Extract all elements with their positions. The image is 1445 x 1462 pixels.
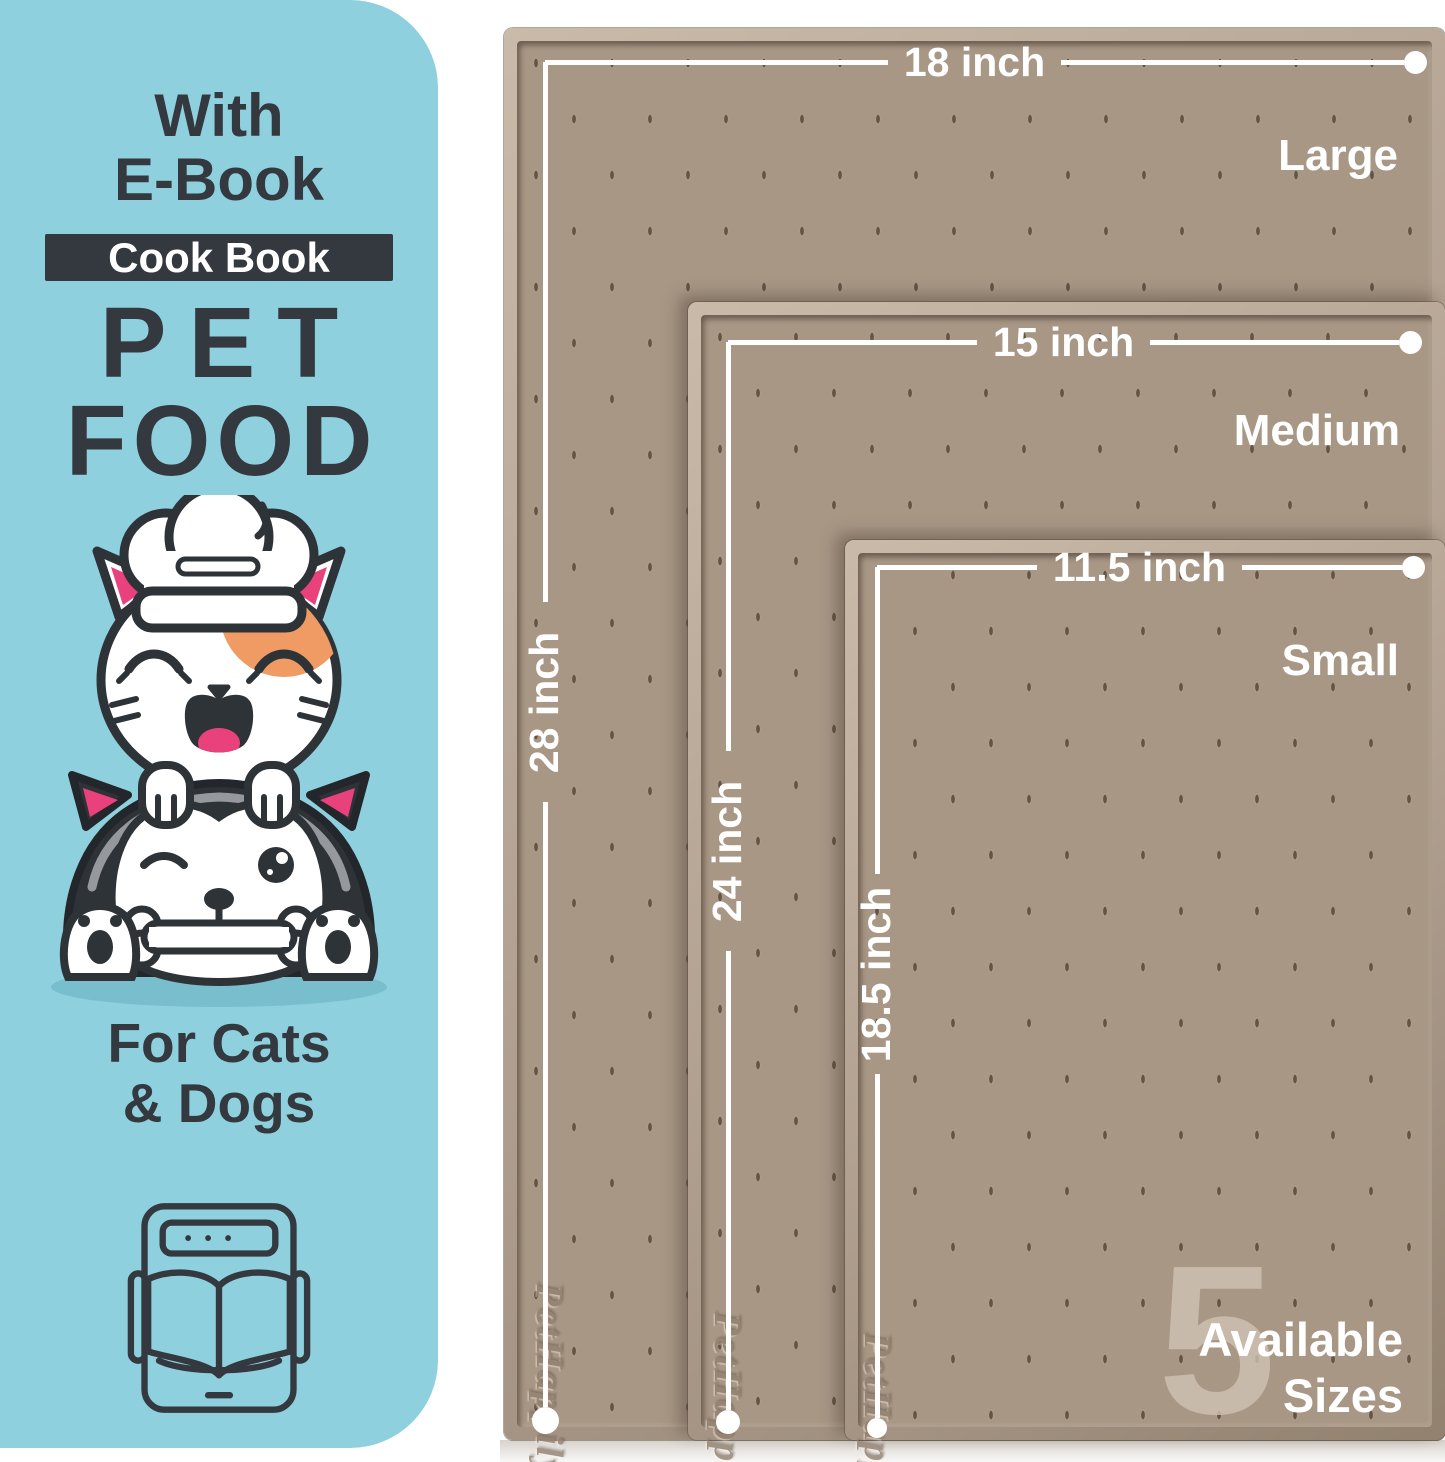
dimension-width-small-label: 11.5 inch (1037, 544, 1242, 591)
cookbook-badge: Cook Book (45, 234, 393, 281)
available-line2: Sizes (1198, 1368, 1403, 1424)
audience-text: For Cats & Dogs (107, 1013, 330, 1133)
chef-hat (124, 495, 314, 628)
dimension-line-segment (726, 342, 731, 751)
dimension-height-medium-labelbox: 24 inch (657, 751, 798, 951)
dimension-endpoint-dot (1402, 556, 1425, 579)
dimension-width-medium-label: 15 inch (977, 319, 1150, 366)
audience-line2: & Dogs (123, 1072, 316, 1134)
dimension-height-large: 28 inch (521, 62, 569, 1434)
dimension-height-large-labelbox: 28 inch (474, 602, 615, 802)
dimension-height-medium-label: 24 inch (705, 781, 752, 922)
dimension-line-segment (875, 567, 880, 874)
dimension-height-medium: 24 inch (704, 342, 752, 1434)
dimension-line-segment (543, 62, 548, 602)
dimension-endpoint-dot (1399, 331, 1422, 354)
size-label-small: Small (1282, 636, 1399, 686)
dimension-height-large-label: 28 inch (522, 631, 569, 772)
headline-line2: E-Book (114, 146, 324, 213)
dimension-endpoint-dot (867, 1418, 887, 1438)
sidebar: With E-Book Cook Book PET FOOD (0, 0, 438, 1448)
dimension-line-segment (728, 340, 977, 345)
dimension-width-large: 18 inch (545, 38, 1427, 86)
dimension-line-segment (1150, 340, 1399, 345)
cat-dog-chef-illustration (24, 495, 414, 1007)
dimension-line-segment (545, 60, 888, 65)
dimension-endpoint-dot (716, 1410, 740, 1434)
size-label-large: Large (1278, 131, 1398, 181)
size-label-medium: Medium (1234, 406, 1400, 456)
available-line1: Available (1198, 1312, 1403, 1368)
headline-line1: With (154, 82, 283, 149)
title-line1: PET (82, 295, 379, 391)
dimension-height-small: 18.5 inch (853, 567, 901, 1438)
dimension-line-segment (1242, 565, 1402, 570)
dimension-width-medium: 15 inch (728, 318, 1422, 366)
pet-food-title: PET FOOD (60, 295, 379, 491)
ebook-tablet-icon (126, 1199, 312, 1417)
mat-ground-shadow (500, 1440, 1445, 1462)
dimension-width-small: 11.5 inch (877, 543, 1425, 591)
cookbook-badge-label: Cook Book (108, 234, 330, 282)
dimension-height-small-labelbox: 18.5 inch (789, 874, 964, 1074)
dimension-height-small-label: 18.5 inch (854, 886, 901, 1061)
dimension-line-segment (875, 1074, 880, 1418)
dimension-width-large-label: 18 inch (888, 39, 1061, 86)
dimension-endpoint-dot (532, 1407, 559, 1434)
dimension-line-segment (543, 802, 548, 1407)
ebook-headline: With E-Book (114, 84, 324, 212)
product-infographic: With E-Book Cook Book PET FOOD (0, 0, 1445, 1462)
audience-line1: For Cats (107, 1012, 330, 1074)
dimension-line-segment (726, 951, 731, 1410)
dimension-line-segment (1061, 60, 1404, 65)
dimension-endpoint-dot (1404, 51, 1427, 74)
available-sizes-label: Available Sizes (1198, 1312, 1403, 1424)
title-line2: FOOD (66, 391, 379, 491)
